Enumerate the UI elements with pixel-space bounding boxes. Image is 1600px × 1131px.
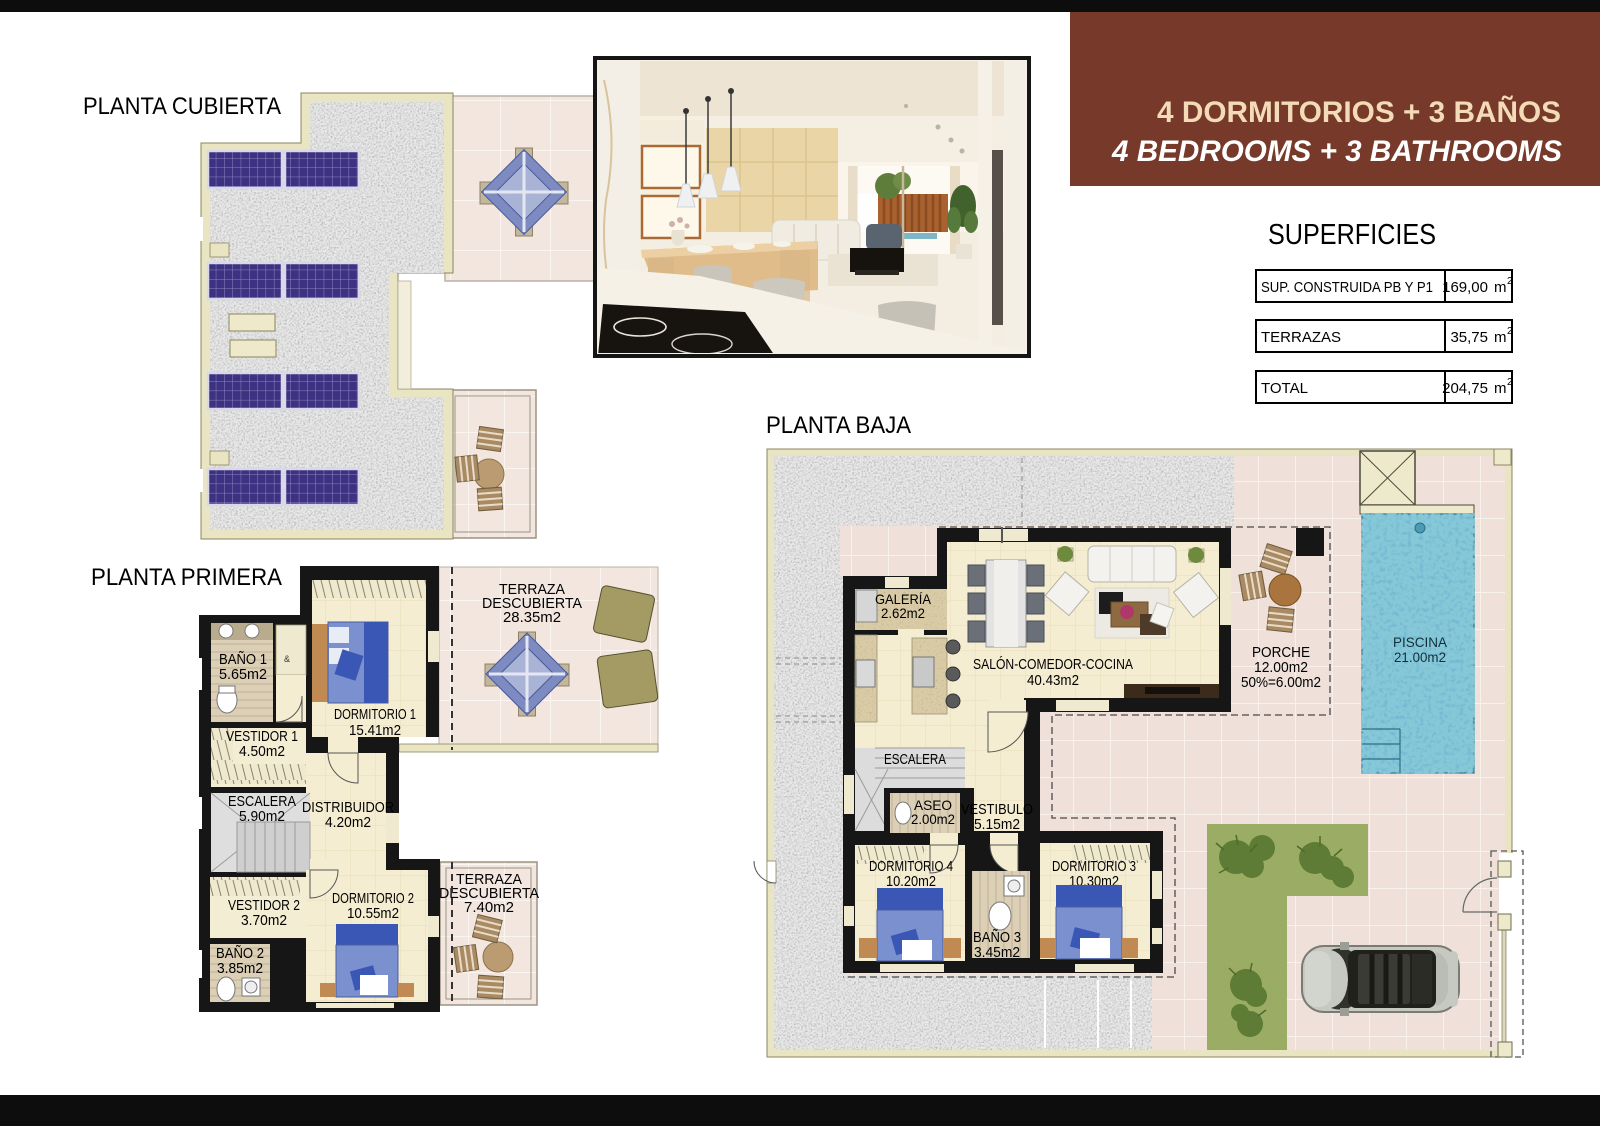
svg-text:7.40m2: 7.40m2 [464, 899, 514, 916]
svg-text:PLANTA BAJA: PLANTA BAJA [766, 412, 911, 439]
svg-text:3.70m2: 3.70m2 [241, 912, 287, 929]
svg-text:m: m [1494, 329, 1507, 346]
svg-text:DORMITORIO 1: DORMITORIO 1 [334, 706, 416, 723]
svg-text:3.85m2: 3.85m2 [217, 960, 263, 977]
svg-text:10.20m2: 10.20m2 [886, 873, 936, 890]
svg-text:28.35m2: 28.35m2 [503, 609, 561, 626]
svg-text:PISCINA: PISCINA [1393, 634, 1448, 650]
svg-text:3.45m2: 3.45m2 [974, 944, 1020, 961]
svg-text:SALÓN-COMEDOR-COCINA: SALÓN-COMEDOR-COCINA [973, 656, 1133, 673]
svg-text:PLANTA CUBIERTA: PLANTA CUBIERTA [83, 93, 281, 120]
svg-text:35,75: 35,75 [1450, 329, 1488, 346]
svg-text:SUPERFICIES: SUPERFICIES [1268, 219, 1436, 251]
svg-text:PLANTA PRIMERA: PLANTA PRIMERA [91, 564, 282, 591]
svg-text:50%=6.00m2: 50%=6.00m2 [1241, 674, 1321, 691]
svg-text:169,00: 169,00 [1442, 279, 1488, 296]
svg-text:4.50m2: 4.50m2 [239, 743, 285, 760]
svg-text:m: m [1494, 380, 1507, 397]
svg-text:15.41m2: 15.41m2 [349, 722, 401, 739]
svg-text:m: m [1494, 279, 1507, 296]
svg-text:204,75: 204,75 [1442, 380, 1488, 397]
svg-text:10.55m2: 10.55m2 [347, 905, 399, 922]
svg-text:TERRAZAS: TERRAZAS [1261, 329, 1341, 346]
svg-text:4 DORMITORIOS + 3 BAÑOS: 4 DORMITORIOS + 3 BAÑOS [1157, 95, 1561, 129]
svg-text:ESCALERA: ESCALERA [884, 751, 946, 768]
svg-text:2.62m2: 2.62m2 [881, 605, 925, 621]
svg-text:4 BEDROOMS + 3 BATHROOMS: 4 BEDROOMS + 3 BATHROOMS [1111, 135, 1562, 168]
svg-text:&: & [284, 654, 290, 664]
svg-text:4.20m2: 4.20m2 [325, 814, 371, 831]
svg-text:5.65m2: 5.65m2 [219, 666, 267, 683]
svg-text:2: 2 [1507, 326, 1513, 337]
svg-text:5.15m2: 5.15m2 [974, 816, 1020, 833]
svg-text:SUP. CONSTRUIDA PB Y P1: SUP. CONSTRUIDA PB Y P1 [1261, 279, 1433, 296]
svg-text:2.00m2: 2.00m2 [911, 811, 955, 827]
svg-text:5.90m2: 5.90m2 [239, 808, 285, 825]
svg-text:2: 2 [1507, 276, 1513, 287]
svg-text:2: 2 [1507, 377, 1513, 388]
svg-text:40.43m2: 40.43m2 [1027, 672, 1079, 689]
svg-text:21.00m2: 21.00m2 [1394, 649, 1446, 665]
svg-text:TOTAL: TOTAL [1261, 380, 1308, 397]
